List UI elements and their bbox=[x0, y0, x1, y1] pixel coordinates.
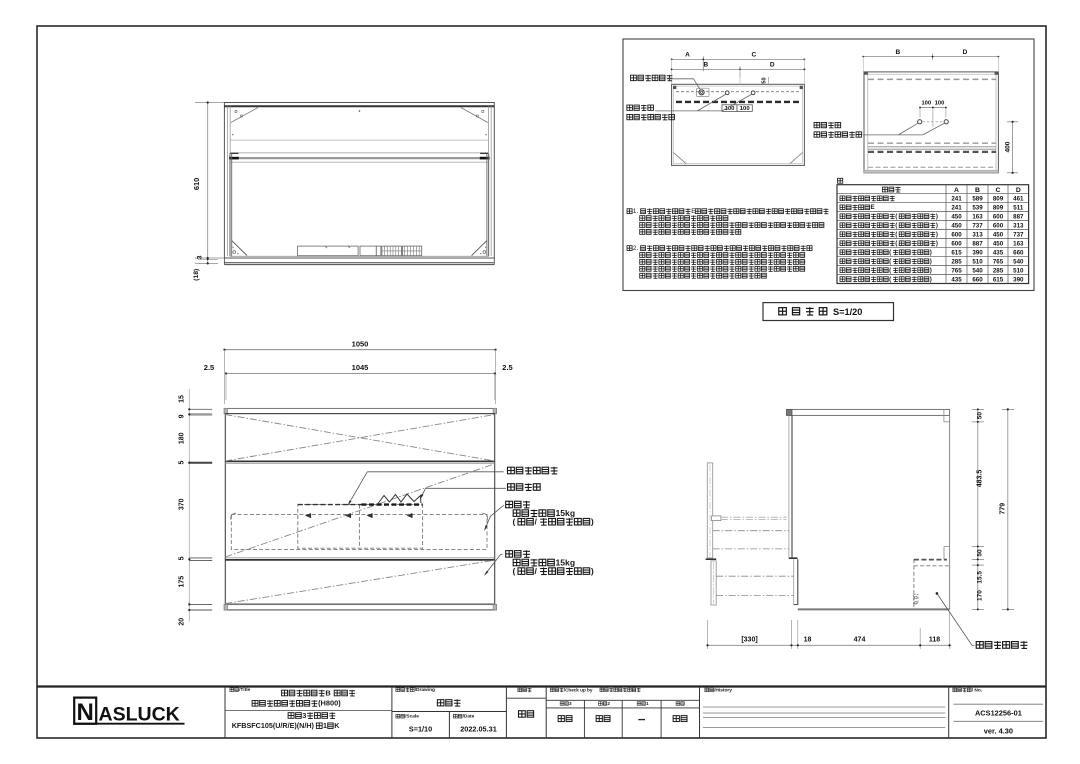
svg-text:660: 660 bbox=[972, 276, 983, 283]
svg-text:3: 3 bbox=[569, 701, 572, 706]
svg-text:15kg: 15kg bbox=[556, 557, 576, 567]
svg-text:E: E bbox=[871, 204, 875, 211]
svg-text:779: 779 bbox=[1000, 503, 1007, 515]
svg-text:B: B bbox=[325, 688, 330, 697]
svg-text:163: 163 bbox=[972, 214, 983, 221]
svg-text:B: B bbox=[896, 49, 901, 56]
svg-text:[330]: [330] bbox=[741, 636, 757, 643]
svg-text:539: 539 bbox=[972, 205, 983, 212]
svg-text:A: A bbox=[685, 52, 690, 59]
svg-text:(H800): (H800) bbox=[318, 699, 341, 708]
svg-text:): ) bbox=[930, 258, 932, 265]
svg-text:/Drawing: /Drawing bbox=[415, 687, 435, 693]
svg-text:20: 20 bbox=[179, 618, 186, 626]
svg-text:100: 100 bbox=[935, 101, 945, 107]
svg-text:): ) bbox=[591, 566, 594, 576]
svg-text:50: 50 bbox=[762, 77, 768, 83]
svg-text:313: 313 bbox=[972, 232, 983, 239]
svg-text:): ) bbox=[930, 276, 932, 283]
svg-text:ASLUCK: ASLUCK bbox=[99, 703, 180, 725]
svg-text:S=1/20: S=1/20 bbox=[833, 307, 862, 317]
svg-text:): ) bbox=[936, 213, 938, 220]
svg-text:2.5: 2.5 bbox=[204, 363, 214, 372]
svg-text:765: 765 bbox=[993, 258, 1004, 265]
svg-text:ver. 4.30: ver. 4.30 bbox=[984, 726, 1013, 735]
svg-text:118: 118 bbox=[929, 636, 940, 643]
svg-text:/ No.: / No. bbox=[972, 687, 982, 693]
svg-text:510: 510 bbox=[972, 258, 983, 265]
svg-text:5: 5 bbox=[179, 556, 186, 560]
svg-text:450: 450 bbox=[951, 223, 962, 230]
svg-text:163: 163 bbox=[1013, 240, 1024, 247]
svg-text:285: 285 bbox=[951, 258, 962, 265]
svg-text:615: 615 bbox=[993, 276, 1004, 283]
svg-text:809: 809 bbox=[993, 205, 1004, 212]
svg-text:D: D bbox=[770, 62, 775, 69]
svg-text:510: 510 bbox=[1013, 267, 1024, 274]
svg-text:540: 540 bbox=[972, 267, 983, 274]
svg-text:600: 600 bbox=[993, 214, 1004, 221]
svg-text:3: 3 bbox=[197, 255, 204, 259]
svg-text:660: 660 bbox=[1013, 249, 1024, 256]
svg-text:D: D bbox=[1016, 187, 1021, 194]
svg-text:887: 887 bbox=[972, 240, 983, 247]
svg-text:50: 50 bbox=[977, 549, 984, 557]
svg-text:450: 450 bbox=[993, 240, 1004, 247]
svg-text:3: 3 bbox=[302, 711, 306, 720]
svg-text:610: 610 bbox=[192, 178, 201, 191]
svg-text:1: 1 bbox=[646, 701, 649, 706]
svg-text:/History: /History bbox=[714, 687, 732, 693]
svg-text:N: N bbox=[77, 699, 94, 726]
svg-text:S=1/10: S=1/10 bbox=[409, 724, 432, 733]
svg-text:5: 5 bbox=[179, 461, 186, 465]
svg-text:2022.05.31: 2022.05.31 bbox=[460, 724, 497, 733]
svg-text:737: 737 bbox=[972, 223, 983, 230]
svg-text:285: 285 bbox=[993, 267, 1004, 274]
svg-text:C: C bbox=[996, 187, 1001, 194]
svg-text:2.: 2. bbox=[633, 245, 639, 252]
svg-text:KFBSFC105(U/R/E)(N/H): KFBSFC105(U/R/E)(N/H) bbox=[232, 721, 315, 730]
svg-text:241: 241 bbox=[951, 196, 962, 203]
svg-text:390: 390 bbox=[972, 249, 983, 256]
svg-text:474: 474 bbox=[854, 636, 866, 643]
svg-text:2: 2 bbox=[607, 701, 610, 706]
svg-text:1045: 1045 bbox=[352, 363, 369, 372]
svg-text:): ) bbox=[930, 249, 932, 256]
svg-text:737: 737 bbox=[1013, 232, 1024, 239]
svg-text:50: 50 bbox=[977, 412, 984, 420]
svg-text:/Scale: /Scale bbox=[405, 714, 419, 720]
svg-text:): ) bbox=[936, 222, 938, 229]
svg-text:(18): (18) bbox=[193, 269, 200, 281]
svg-text:(: ( bbox=[513, 566, 516, 576]
svg-text:1.: 1. bbox=[633, 208, 639, 215]
svg-text:D: D bbox=[963, 49, 968, 56]
svg-text:100: 100 bbox=[740, 106, 751, 112]
svg-text:765: 765 bbox=[951, 267, 962, 274]
svg-text:170: 170 bbox=[977, 590, 984, 601]
svg-text:C: C bbox=[752, 52, 757, 59]
svg-text:589: 589 bbox=[972, 196, 983, 203]
svg-text:15kg: 15kg bbox=[556, 508, 576, 518]
svg-text:390: 390 bbox=[1013, 276, 1024, 283]
svg-text:100: 100 bbox=[725, 106, 736, 112]
svg-text:(: ( bbox=[513, 517, 516, 527]
svg-text:15: 15 bbox=[179, 395, 186, 403]
svg-text:B: B bbox=[975, 187, 980, 194]
svg-text:615: 615 bbox=[951, 249, 962, 256]
svg-text:2.5: 2.5 bbox=[502, 363, 512, 372]
svg-text:9: 9 bbox=[179, 414, 186, 418]
svg-text:400: 400 bbox=[1005, 141, 1012, 152]
svg-text:): ) bbox=[936, 231, 938, 238]
svg-text:435: 435 bbox=[993, 249, 1004, 256]
svg-text:461: 461 bbox=[1013, 196, 1024, 203]
svg-text:): ) bbox=[591, 517, 594, 527]
svg-text:/Title: /Title bbox=[239, 687, 250, 693]
svg-text:450: 450 bbox=[993, 232, 1004, 239]
svg-text:600: 600 bbox=[951, 240, 962, 247]
svg-text:): ) bbox=[930, 267, 932, 274]
svg-text:/Check up by: /Check up by bbox=[564, 687, 593, 692]
svg-text:887: 887 bbox=[1013, 214, 1024, 221]
svg-text:600: 600 bbox=[993, 223, 1004, 230]
svg-text:241: 241 bbox=[951, 205, 962, 212]
svg-text:435: 435 bbox=[951, 276, 962, 283]
svg-text:K: K bbox=[334, 721, 340, 730]
svg-text:18: 18 bbox=[804, 636, 812, 643]
svg-text:180: 180 bbox=[179, 432, 186, 444]
svg-text:/Date: /Date bbox=[463, 714, 475, 720]
svg-text:540: 540 bbox=[1013, 258, 1024, 265]
svg-text:450: 450 bbox=[951, 214, 962, 221]
svg-text:809: 809 bbox=[993, 196, 1004, 203]
svg-text:1050: 1050 bbox=[352, 339, 369, 348]
svg-text:100: 100 bbox=[921, 101, 931, 107]
svg-text:600: 600 bbox=[951, 232, 962, 239]
svg-text:511: 511 bbox=[1013, 205, 1024, 212]
svg-text:): ) bbox=[936, 240, 938, 247]
svg-text:1: 1 bbox=[323, 721, 327, 730]
svg-text:B: B bbox=[703, 62, 708, 69]
svg-text:ACS12256-01: ACS12256-01 bbox=[975, 709, 1022, 718]
svg-text:15.5: 15.5 bbox=[977, 571, 984, 584]
svg-text:370: 370 bbox=[179, 498, 186, 510]
svg-text:175: 175 bbox=[179, 576, 186, 588]
svg-text:A: A bbox=[954, 187, 959, 194]
svg-text:313: 313 bbox=[1013, 223, 1024, 230]
svg-text:483.5: 483.5 bbox=[977, 470, 984, 488]
svg-text:E: E bbox=[691, 208, 695, 215]
